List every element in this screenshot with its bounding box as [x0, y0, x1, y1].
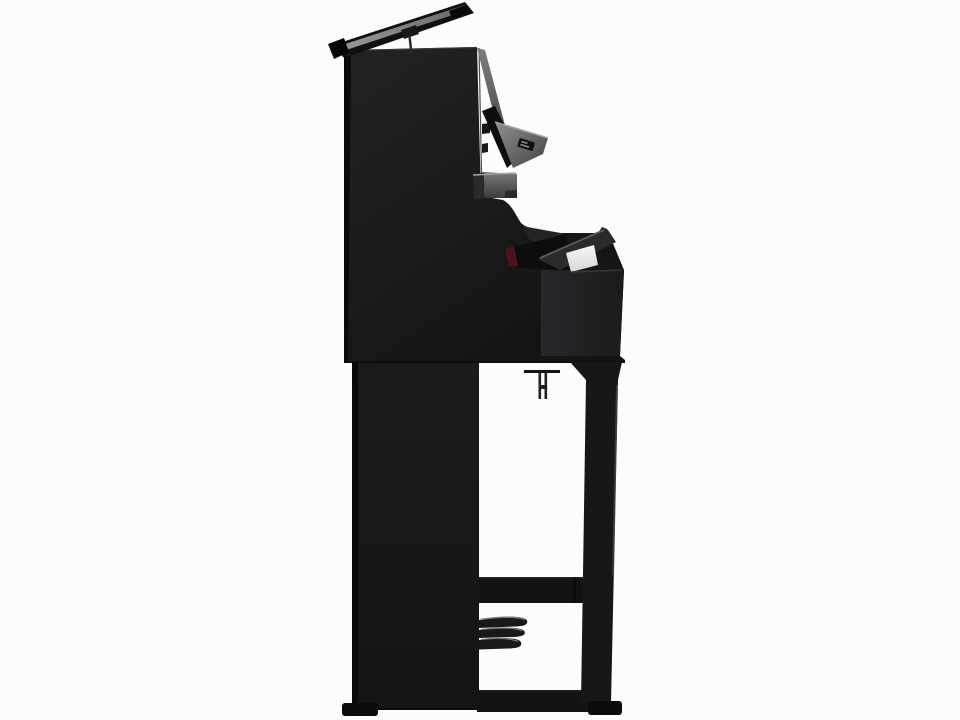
stretcher-bar — [479, 577, 588, 603]
front-foot — [342, 703, 378, 716]
lid-hinge-lower — [482, 143, 488, 153]
front-panel-face — [352, 363, 479, 710]
bracket-crossbar — [539, 385, 548, 389]
product-photo: Black upright digital piano — side profi… — [0, 0, 960, 720]
keybed-front-block — [541, 270, 624, 356]
piano-side-view: Black upright digital piano — side profi… — [0, 0, 960, 720]
bottom-rail — [477, 690, 595, 712]
front-panel-left-edge — [352, 363, 358, 710]
lid-support-block — [473, 172, 517, 200]
support-block-notch — [505, 190, 517, 198]
pedals — [479, 617, 527, 650]
support-block-side — [473, 172, 485, 200]
bracket-shadow — [524, 370, 560, 373]
rear-foot — [588, 701, 622, 715]
